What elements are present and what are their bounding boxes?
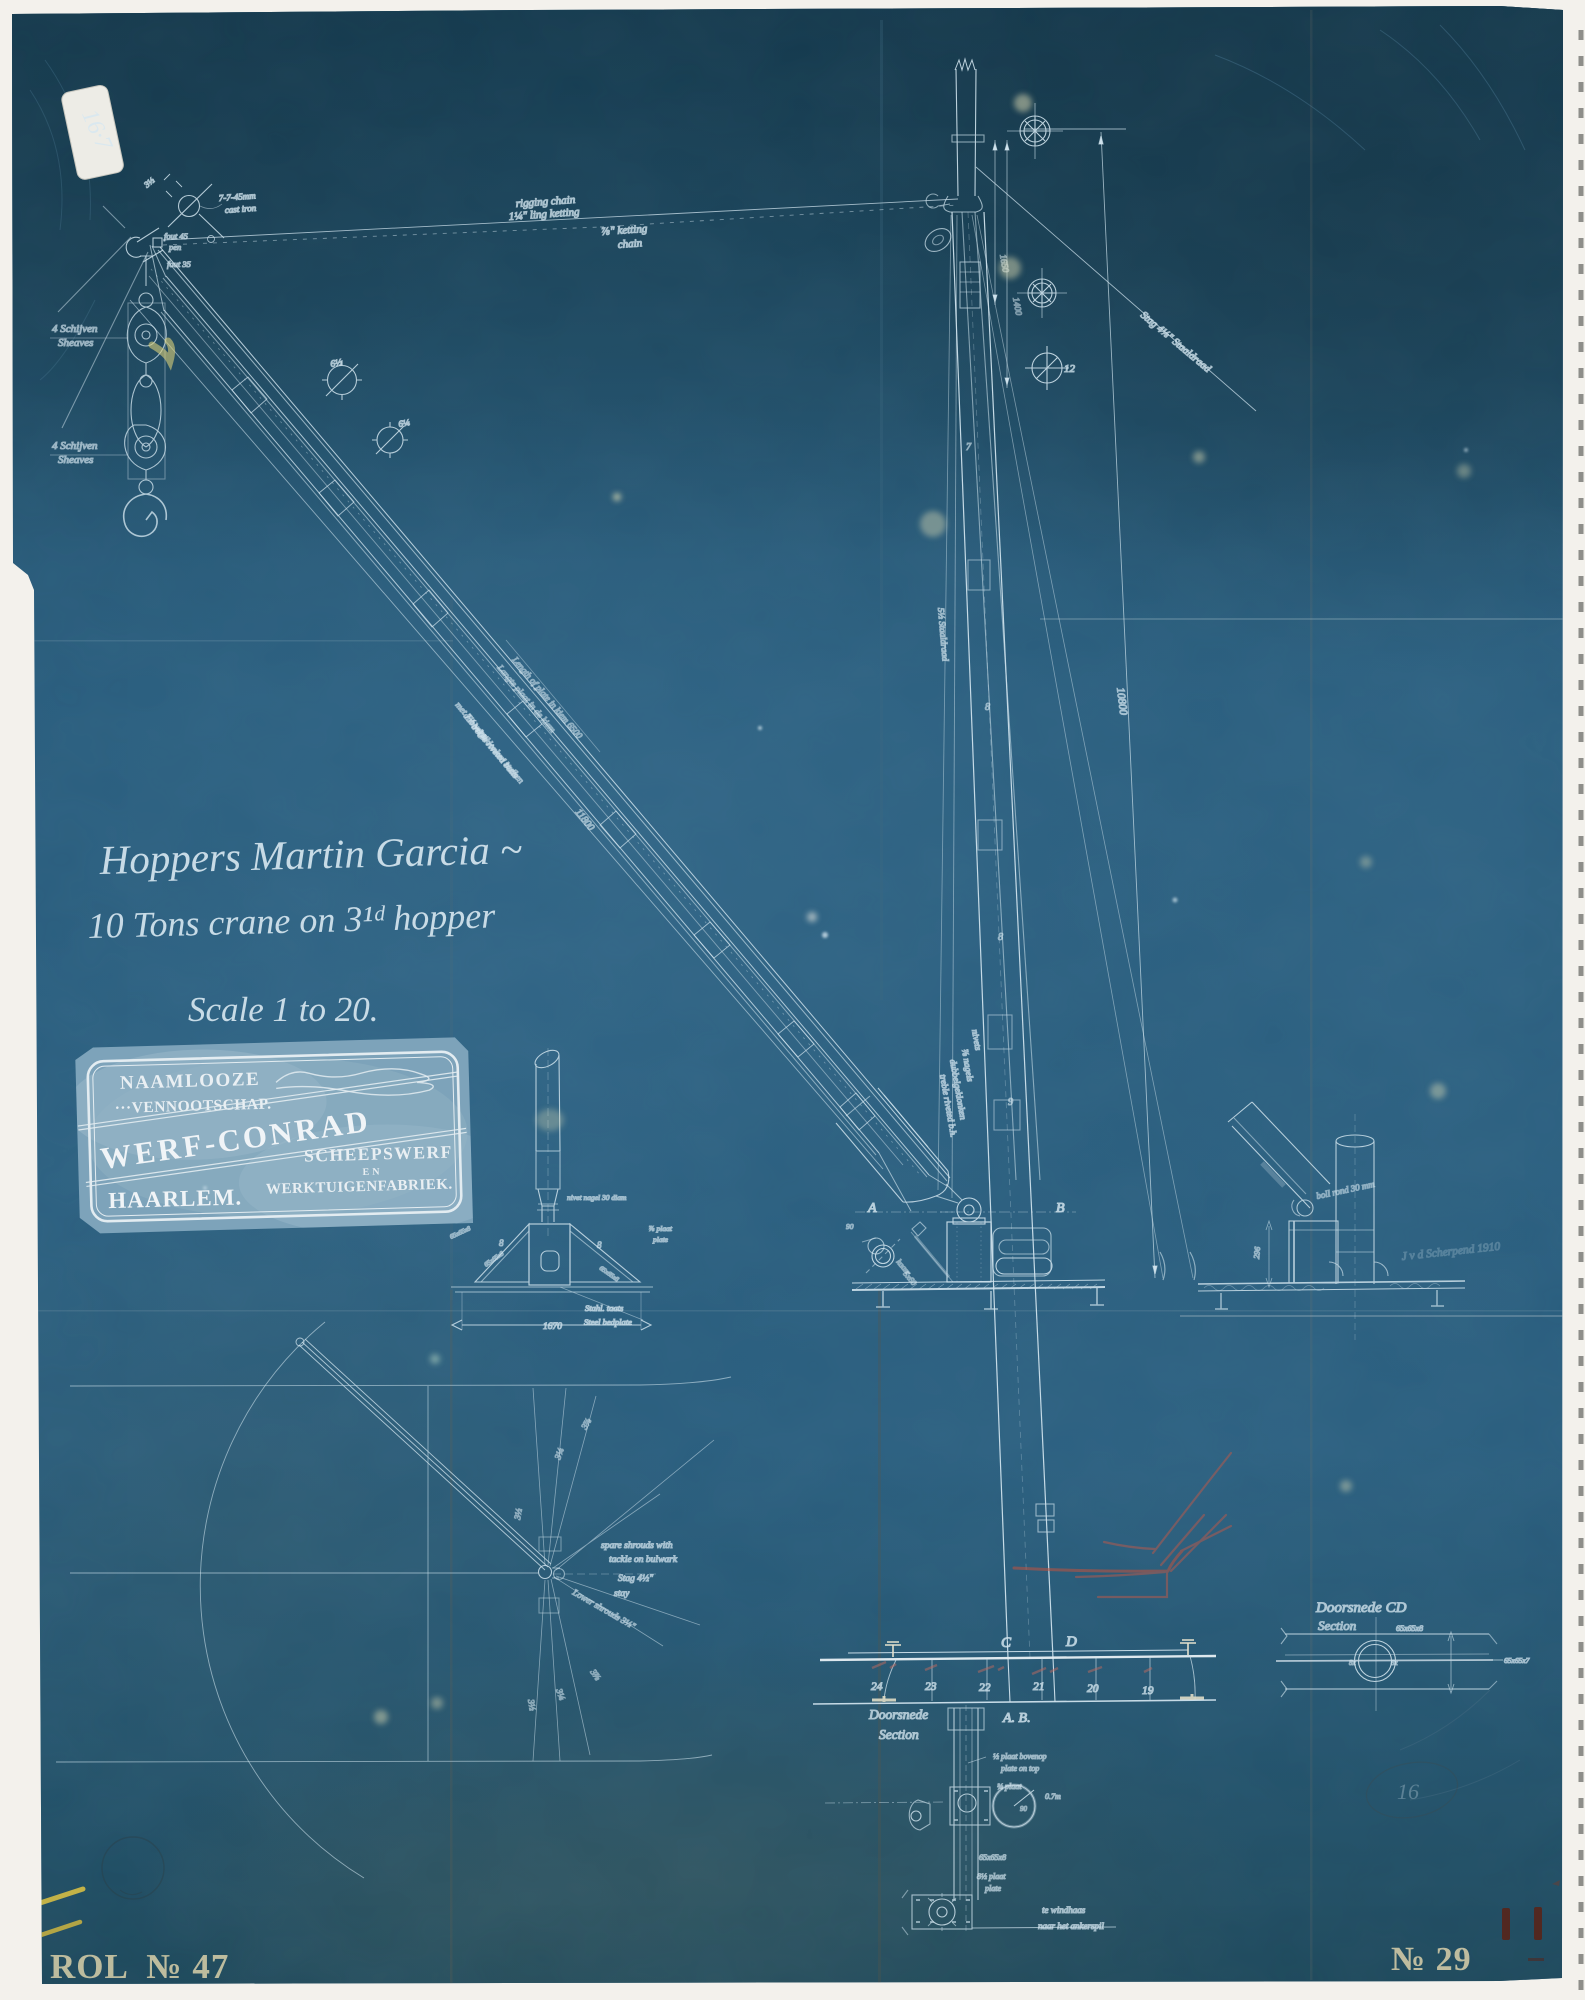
svg-text:24: 24 — [871, 1681, 883, 1693]
svg-text:Stag 4½": Stag 4½" — [618, 1573, 654, 1584]
svg-text:19: 19 — [1142, 1685, 1154, 1697]
svg-text:№ 29: № 29 — [1391, 1941, 1472, 1978]
svg-text:plate: plate — [652, 1235, 669, 1244]
svg-text:nivet nagel 30 diam: nivet nagel 30 diam — [567, 1193, 627, 1202]
svg-text:B: B — [1056, 1201, 1065, 1216]
svg-text:A. B.: A. B. — [1002, 1711, 1031, 1726]
svg-text:4 Schijven: 4 Schijven — [52, 440, 98, 452]
svg-text:4 Schijven: 4 Schijven — [52, 323, 98, 335]
svg-text:HAARLEM.: HAARLEM. — [108, 1184, 243, 1213]
svg-text:chain: chain — [617, 237, 643, 251]
svg-text:1670: 1670 — [543, 1322, 562, 1332]
svg-text:plate on top: plate on top — [1000, 1764, 1039, 1773]
svg-text:ROL № 47: ROL № 47 — [50, 1947, 229, 1986]
svg-text:3½: 3½ — [512, 1507, 524, 1521]
svg-text:Sheaves: Sheaves — [58, 337, 93, 349]
svg-text:6½: 6½ — [330, 357, 344, 370]
svg-text:22: 22 — [979, 1682, 991, 1694]
svg-text:SCHEEPSWERF: SCHEEPSWERF — [304, 1141, 453, 1165]
svg-text:65x65x7: 65x65x7 — [1504, 1656, 1530, 1665]
svg-text:naar het ankerspil: naar het ankerspil — [1038, 1921, 1104, 1931]
svg-text:16: 16 — [1397, 1779, 1419, 1804]
svg-text:20: 20 — [1087, 1683, 1099, 1695]
svg-text:Scale 1 to 20.: Scale 1 to 20. — [188, 990, 379, 1029]
svg-text:8: 8 — [985, 702, 990, 713]
svg-text:8½ plaat: 8½ plaat — [977, 1872, 1006, 1881]
svg-text:9: 9 — [1008, 1097, 1013, 1108]
svg-text:65x65x8: 65x65x8 — [1396, 1624, 1423, 1633]
svg-text:3½: 3½ — [526, 1698, 538, 1712]
svg-text:8: 8 — [998, 932, 1003, 943]
svg-text:21: 21 — [1033, 1681, 1045, 1693]
svg-text:Section: Section — [1318, 1618, 1356, 1633]
svg-text:Doorsnede CD: Doorsnede CD — [1315, 1600, 1407, 1616]
svg-text:stay: stay — [614, 1589, 630, 1599]
svg-text:65x65x8: 65x65x8 — [979, 1853, 1006, 1862]
svg-text:Sheaves: Sheaves — [58, 454, 93, 466]
svg-text:NAAMLOOZE: NAAMLOOZE — [120, 1069, 261, 1094]
svg-text:0.7m: 0.7m — [1045, 1792, 1061, 1801]
svg-text:12: 12 — [1064, 363, 1076, 375]
svg-text:Doorsnede: Doorsnede — [868, 1707, 928, 1722]
svg-text:90: 90 — [1020, 1805, 1028, 1813]
svg-text:EN: EN — [362, 1166, 382, 1178]
svg-text:⅞ plaat: ⅞ plaat — [649, 1224, 673, 1233]
svg-text:8x: 8x — [1391, 1659, 1399, 1667]
svg-text:¾ plaat: ¾ plaat — [997, 1782, 1022, 1791]
svg-text:Steel bedplate: Steel bedplate — [584, 1317, 632, 1327]
svg-text:23: 23 — [925, 1681, 937, 1693]
svg-text:plate: plate — [984, 1884, 1001, 1893]
svg-text:6¼: 6¼ — [398, 417, 411, 429]
svg-text:8: 8 — [499, 1238, 504, 1248]
svg-text:tackle on bulwark: tackle on bulwark — [609, 1555, 678, 1565]
svg-text:te windhaas: te windhaas — [1042, 1905, 1086, 1915]
svg-text:fout 35: fout 35 — [167, 259, 191, 269]
svg-text:D: D — [1065, 1634, 1077, 1650]
svg-text:8: 8 — [597, 1240, 602, 1250]
svg-text:C: C — [1001, 1635, 1012, 1651]
svg-text:fout 45: fout 45 — [164, 231, 188, 241]
svg-text:8x: 8x — [1349, 1659, 1357, 1667]
svg-text:A: A — [867, 1201, 877, 1216]
svg-text:spare shrouds with: spare shrouds with — [601, 1541, 673, 1551]
svg-text:90: 90 — [846, 1222, 854, 1231]
svg-text:296: 296 — [1252, 1246, 1262, 1259]
svg-text:Stahl. taats: Stahl. taats — [585, 1303, 624, 1313]
svg-text:½ plaat bovenop: ½ plaat bovenop — [993, 1752, 1047, 1761]
svg-text:pen: pen — [168, 242, 181, 252]
svg-text:Section: Section — [879, 1727, 919, 1742]
